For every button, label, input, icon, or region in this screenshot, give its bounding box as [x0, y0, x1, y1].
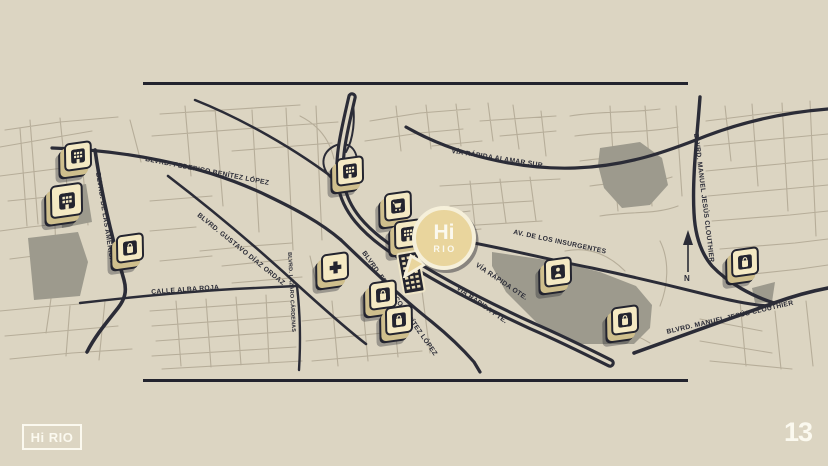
north-label: N [684, 274, 690, 283]
map-marker-shop [731, 248, 759, 276]
callout-hi-text: Hi [434, 222, 455, 243]
hi-rio-logo: Hi RIO [22, 424, 82, 450]
hi-rio-logo-text: Hi RIO [31, 430, 74, 445]
map-marker-shop [385, 306, 413, 334]
bag-icon [392, 312, 406, 328]
map-marker-building [64, 142, 92, 170]
map-marker-shop [611, 306, 639, 334]
map-marker-building [50, 184, 83, 217]
page-number: 13 [784, 417, 812, 448]
map-marker-hospital [321, 253, 349, 281]
bag-icon [376, 287, 390, 303]
medical-cross-icon [327, 258, 342, 275]
map-marker-store [384, 192, 412, 220]
map-marker-shop [116, 234, 144, 262]
map-marker-shop [369, 281, 397, 309]
top-divider [143, 82, 688, 85]
map-marker-landmark [544, 258, 572, 286]
building-icon [58, 191, 74, 209]
bag-icon [123, 240, 137, 256]
north-arrow-icon [683, 230, 693, 272]
bag-icon [618, 312, 632, 328]
cart-icon [391, 198, 405, 214]
map: BLVRD. FEDERICO BENÍTEZ LÓPEZ BLVRD. DE … [0, 0, 828, 466]
building-icon [71, 148, 85, 164]
hi-rio-callout: Hi RIO [412, 206, 476, 270]
callout-rio-text: RIO [431, 244, 456, 254]
map-marker-building [336, 157, 364, 185]
bag-icon [738, 254, 752, 270]
bottom-divider [143, 379, 688, 382]
building-icon [343, 163, 357, 179]
person-icon [551, 264, 565, 280]
